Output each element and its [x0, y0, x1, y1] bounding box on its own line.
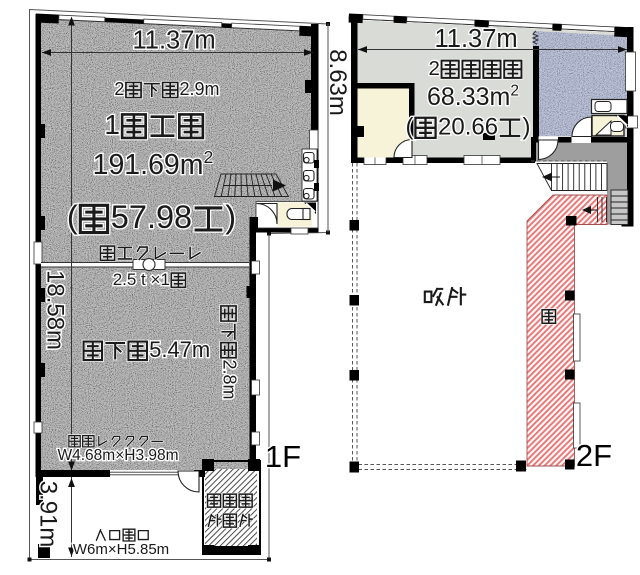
svg-text:1: 1: [161, 270, 170, 289]
svg-text:): ): [523, 114, 531, 141]
svg-text:2: 2: [429, 57, 440, 80]
svg-text:2.9m: 2.9m: [180, 79, 220, 99]
svg-text:2: 2: [114, 79, 124, 99]
svg-text:W4.68m×H3.98m: W4.68m×H3.98m: [58, 447, 179, 464]
svg-text:): ): [225, 199, 236, 235]
svg-text:2F: 2F: [576, 438, 612, 473]
svg-text:2.8m: 2.8m: [220, 360, 240, 400]
svg-text:5.47m: 5.47m: [149, 337, 210, 362]
svg-text:(: (: [406, 114, 414, 141]
svg-text:W6m×H5.85m: W6m×H5.85m: [73, 541, 169, 558]
svg-text:11.37m: 11.37m: [435, 25, 518, 53]
svg-text:68.33m: 68.33m: [427, 83, 510, 111]
svg-text:11.37m: 11.37m: [133, 27, 216, 55]
svg-text:18.58m: 18.58m: [42, 270, 69, 350]
svg-text:191.69m: 191.69m: [93, 149, 204, 181]
svg-text:(: (: [67, 199, 78, 235]
svg-text:3.91m: 3.91m: [35, 481, 62, 548]
svg-text:8.63m: 8.63m: [324, 49, 351, 116]
svg-text:1F: 1F: [265, 439, 301, 474]
svg-text:57.98: 57.98: [111, 199, 192, 235]
svg-text:1: 1: [104, 109, 120, 140]
svg-text:20.66: 20.66: [438, 114, 498, 141]
svg-text:2.5 t ×: 2.5 t ×: [113, 270, 161, 289]
svg-text:2: 2: [204, 147, 214, 167]
svg-text:2: 2: [510, 83, 519, 100]
